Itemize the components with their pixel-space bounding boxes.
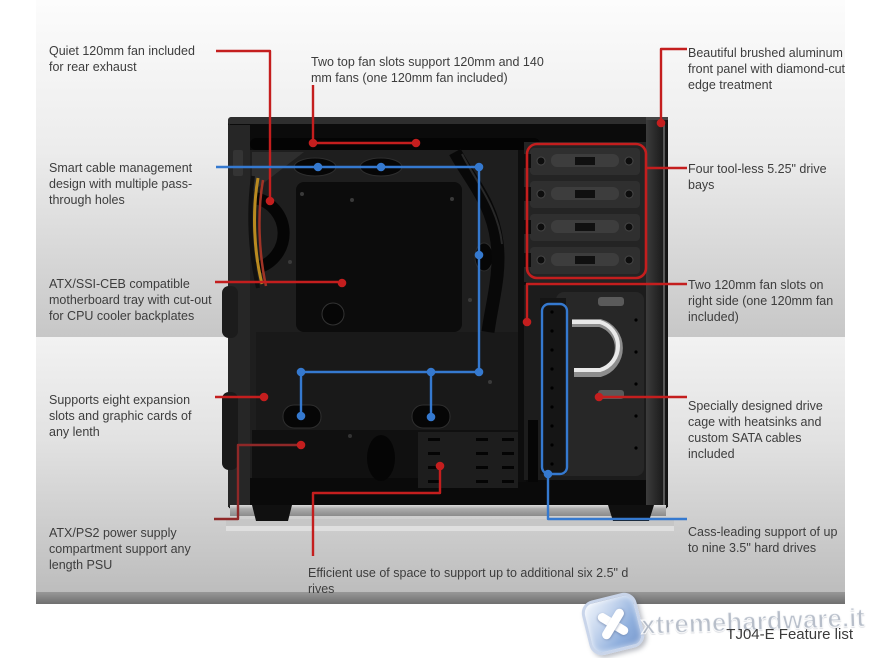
callout-top-fan-slots: Two top fan slots support 120mm and 140 …: [311, 54, 544, 86]
case-photo: [222, 117, 674, 531]
xtremehardware-logo-icon: [579, 590, 647, 658]
callout-side-fan-slots: Two 120mm fan slots on right side (one 1…: [688, 277, 833, 325]
callout-quiet-fan: Quiet 120mm fan included for rear exhaus…: [49, 43, 195, 75]
callout-motherboard-tray: ATX/SSI-CEB compatible motherboard tray …: [49, 276, 212, 324]
callout-psu-compartment: ATX/PS2 power supply compartment support…: [49, 525, 191, 573]
callout-drive-bays: Four tool-less 5.25" drive bays: [688, 161, 827, 193]
watermark: xtremehardware.it: [575, 590, 875, 656]
leader-front-panel: [661, 49, 687, 120]
callout-cable-management: Smart cable management design with multi…: [49, 160, 192, 208]
page-title: TJ04-E Feature list: [726, 626, 853, 643]
feature-diagram-page: Quiet 120mm fan included for rear exhaus…: [0, 0, 881, 656]
callout-front-panel: Beautiful brushed aluminum front panel w…: [688, 45, 845, 93]
callout-expansion-slots: Supports eight expansion slots and graph…: [49, 392, 191, 440]
callout-hdd-support: Cass-leading support of up to nine 3.5" …: [688, 524, 837, 556]
callout-drive-cage: Specially designed drive cage with heats…: [688, 398, 823, 462]
